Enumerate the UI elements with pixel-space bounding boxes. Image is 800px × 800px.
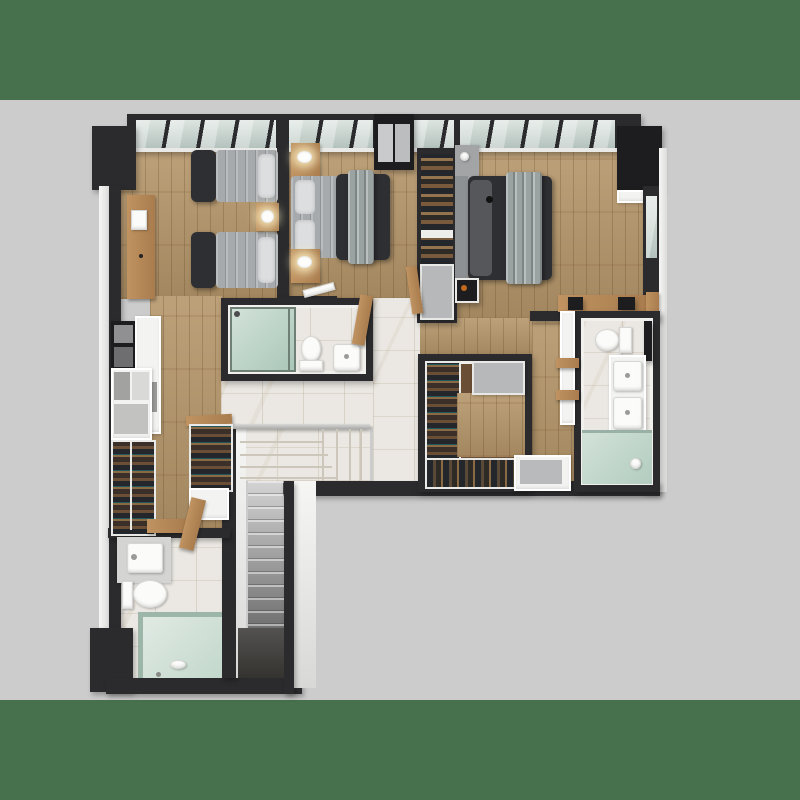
closet-entry-wood-floor [412, 318, 532, 356]
wood-shelf [556, 358, 579, 368]
right-exterior-wall-face [659, 148, 667, 492]
shelf-knob [139, 254, 143, 258]
throw-blanket-bedroom2 [348, 170, 374, 264]
shelf-cubby [114, 347, 133, 367]
stair-landing-marble [221, 380, 373, 427]
shower-glass-door [288, 309, 290, 370]
shower-tray [170, 660, 186, 669]
window-closet-column [414, 120, 454, 148]
lamp-bedroom1 [261, 210, 274, 223]
left-exterior-wall-face [99, 186, 109, 638]
stair-flight-down [248, 481, 284, 628]
bed3-headboard [455, 176, 468, 280]
reading-lamp-bedroom3 [486, 196, 493, 203]
winder-step-edge [240, 441, 324, 443]
winder-step-edge [336, 429, 338, 481]
twin-bed2-footer [191, 232, 216, 288]
closet-cabinet-top [472, 361, 525, 395]
wardrobe-lower-cabinet [420, 264, 454, 320]
divider-cabinet-door-right [395, 124, 410, 162]
cabinet-opening [114, 372, 130, 400]
wardrobe-hanging-clothes-top [421, 154, 453, 230]
faucet [625, 410, 630, 415]
window-bedroom1 [136, 120, 276, 148]
winder-step-edge [240, 477, 336, 479]
toilet-tank-lower [122, 581, 133, 609]
divider-cabinet-door-left [378, 124, 393, 162]
twin-bed1-pillow [258, 154, 275, 198]
pillow-bedroom3 [470, 180, 492, 276]
headboard-desk-bedroom3 [455, 145, 479, 180]
winder-step-edge [240, 466, 332, 468]
twin-bed2-pillow [258, 237, 275, 283]
stairwell-exterior-wall-face [294, 481, 316, 688]
shower-drain [630, 458, 641, 469]
shower-glass-lower-top [138, 612, 222, 617]
bedside-unit-accent [461, 285, 467, 291]
shower-head [234, 311, 240, 317]
closet-inner-floor [457, 393, 525, 457]
pillow-bedroom2 [295, 180, 315, 214]
winder-step-edge [360, 429, 362, 481]
cabinet-opening [132, 372, 149, 400]
bedside-unit-bedroom3 [455, 278, 479, 303]
bag-on-console [618, 297, 635, 310]
wardrobe-shelf [421, 230, 453, 238]
kettle [460, 152, 469, 161]
wood-shelf [556, 390, 579, 400]
bathroom-right-cabinet [560, 311, 575, 425]
stairwell-right-wall [284, 481, 294, 694]
winder-step-edge [240, 454, 328, 456]
floor-plan-render [0, 0, 800, 800]
shower-center [230, 307, 296, 372]
faucet [625, 373, 630, 378]
art-print [131, 210, 147, 230]
shower-drain-lower [156, 672, 161, 677]
lamp-bedroom2-top [297, 151, 312, 163]
matte-band-top [0, 0, 800, 100]
shower-glass-lower-left [138, 612, 143, 678]
toilet-tank-center [299, 360, 323, 371]
toilet-bowl-right [595, 329, 619, 351]
wardrobe-right-wing [189, 424, 233, 492]
stair-lower-landing [238, 628, 284, 678]
corner-block-top-left [92, 126, 136, 190]
bottom-wall-lower-wing [106, 678, 302, 694]
twin-bed1-footer [191, 150, 216, 202]
faucet [131, 554, 137, 560]
black-closet-top-right [617, 126, 662, 190]
toilet-tank-right [619, 327, 632, 353]
matte-band-bottom [0, 700, 800, 800]
bag-on-console [568, 297, 583, 310]
cabinet-opening [114, 404, 148, 434]
hallway-marble-floor [373, 298, 420, 483]
lamp-bedroom2-bottom [297, 256, 312, 268]
toilet-bowl-center [301, 336, 321, 362]
closet-hanging-clothes [425, 361, 461, 462]
shelf-cubby [114, 325, 133, 343]
closet-shoe-row [425, 458, 519, 489]
cabinet-inset [520, 460, 562, 484]
winder-step-edge [349, 429, 351, 481]
throw-blanket-bedroom3 [506, 172, 542, 284]
wardrobe-hanging-clothes-lower [421, 238, 453, 264]
shower-floor-right [582, 433, 652, 484]
sink-faucet-center [344, 354, 349, 359]
toilet-bowl-lower [133, 580, 167, 608]
wardrobe-rail [130, 442, 132, 530]
window-bedroom3 [460, 120, 615, 148]
wood-bench [147, 519, 187, 533]
window-right-side [646, 196, 657, 258]
stool-bedroom3 [646, 292, 659, 311]
